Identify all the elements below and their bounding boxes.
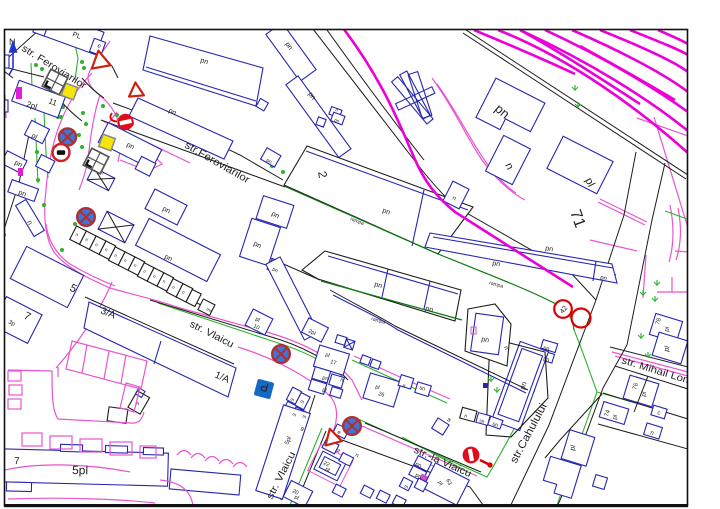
svg-text:pn: pn xyxy=(545,245,554,253)
svg-text:pn: pn xyxy=(492,260,501,268)
svg-text:5pl: 5pl xyxy=(72,463,88,477)
svg-text:7: 7 xyxy=(14,456,20,467)
svg-text:pn: pn xyxy=(600,275,608,282)
